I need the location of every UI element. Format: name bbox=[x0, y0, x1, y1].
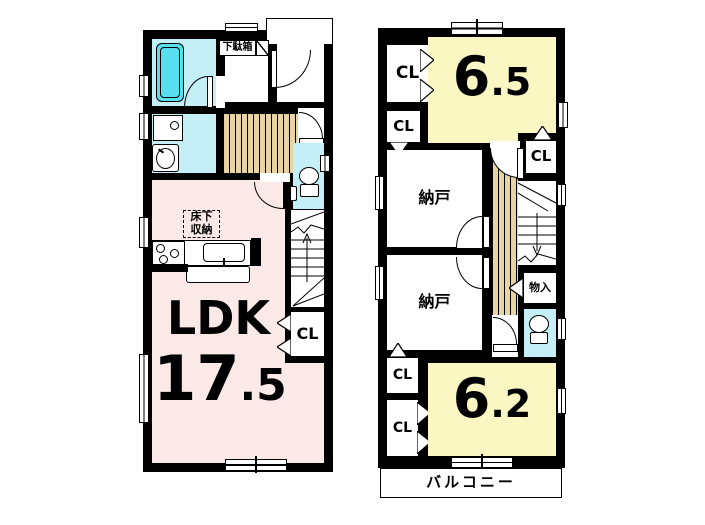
room-6-5-size: 6 .5 bbox=[428, 50, 556, 120]
closet-2f-1-bifold-icon-top bbox=[420, 49, 434, 72]
stairwell-1f-steps bbox=[291, 210, 324, 307]
ldk-room-lower-right bbox=[285, 363, 324, 463]
entrance-step bbox=[225, 23, 258, 32]
washing-machine-dial bbox=[170, 121, 179, 130]
underfloor-storage-box: 床下 収納 bbox=[183, 210, 220, 238]
storage-room-2-door-leaf bbox=[483, 257, 490, 289]
balcony: バルコニー bbox=[380, 468, 562, 498]
window-ldk-left-lower bbox=[139, 354, 149, 423]
closet-2f-3: CL bbox=[387, 358, 418, 393]
kitchen-faucet bbox=[223, 258, 225, 266]
toilet-tank-icon bbox=[300, 184, 319, 197]
closet-2f-1-label: CL bbox=[396, 64, 419, 84]
window-stairs-right bbox=[557, 184, 566, 206]
stairwell-1f bbox=[291, 210, 324, 307]
room-6-2-dec: .2 bbox=[490, 385, 531, 423]
closet-2f-3-bifold-icon bbox=[389, 343, 407, 357]
window-ldk-bottom-tick bbox=[255, 456, 257, 473]
small-storage-label: 物入 bbox=[529, 282, 551, 295]
toilet-2f-bowl-icon bbox=[529, 315, 549, 333]
closet-2f-upper-right: CL bbox=[526, 141, 556, 173]
closet-2f-upper-right-door-icon bbox=[533, 126, 552, 140]
window-bathroom-left bbox=[139, 75, 149, 97]
ldk-size: 17 .5 bbox=[150, 348, 290, 420]
balcony-label: バルコニー bbox=[426, 474, 516, 491]
window-6-5-top-tick bbox=[476, 19, 478, 37]
burner-3 bbox=[159, 255, 168, 264]
kitchen-wall-stub-right bbox=[251, 238, 261, 266]
storage-room-1-label: 納戸 bbox=[418, 189, 450, 207]
kitchen-wall-stub-bottom bbox=[151, 264, 188, 272]
closet-2f-4-label: CL bbox=[393, 420, 412, 436]
bathroom-doorway-gap bbox=[216, 76, 225, 108]
toilet-bowl-icon bbox=[299, 167, 319, 185]
closet-2f-4: CL bbox=[387, 400, 418, 456]
window-toilet-2f bbox=[557, 318, 566, 340]
washing-machine-icon bbox=[153, 115, 183, 141]
toilet-2f-tank-icon bbox=[530, 332, 548, 344]
bathroom-door-leaf bbox=[207, 76, 213, 108]
ldk-name-text: LDK bbox=[167, 292, 270, 345]
small-storage-bifold-icon bbox=[509, 278, 523, 298]
closet-ur-wall-bottom bbox=[518, 173, 565, 181]
bathtub-icon bbox=[156, 43, 184, 102]
burner-2 bbox=[170, 249, 179, 258]
entrance-hall bbox=[225, 56, 268, 102]
closet-1f-label: CL bbox=[297, 325, 319, 343]
vestibule-door-leaf bbox=[493, 344, 518, 352]
vanity-sink-icon bbox=[152, 144, 179, 172]
closet-2f-upper-right-label: CL bbox=[531, 148, 552, 165]
closet-2f-2-label: CL bbox=[393, 118, 414, 135]
room-6-5-dec: .5 bbox=[490, 63, 531, 101]
window-storage1-left bbox=[375, 176, 384, 210]
shoe-cabinet-symbol bbox=[256, 40, 269, 56]
shoe-cabinet-label: 下駄箱 bbox=[223, 42, 253, 54]
stairwell-2f bbox=[518, 181, 556, 265]
bathtub-inner bbox=[160, 47, 180, 98]
underfloor-storage-line2: 収納 bbox=[191, 224, 213, 237]
ldk-size-dec: .5 bbox=[239, 364, 286, 408]
small-storage: 物入 bbox=[524, 273, 556, 303]
toilet-window bbox=[320, 155, 330, 172]
ldk-name: LDK bbox=[152, 292, 285, 344]
kitchen-island bbox=[186, 266, 250, 283]
room-6-5-int: 6 bbox=[453, 50, 491, 104]
room-6-2-int: 6 bbox=[453, 372, 491, 426]
storage-room-1-door-leaf bbox=[483, 216, 490, 248]
ldk-doorway-gap bbox=[260, 173, 290, 182]
ldk-door-leaf bbox=[283, 182, 291, 209]
entrance-door-leaf bbox=[271, 50, 277, 88]
closet-2f-1-bifold-icon-bottom bbox=[420, 79, 434, 102]
ldk-size-int: 17 bbox=[153, 348, 239, 410]
storage-room-2-label: 納戸 bbox=[418, 293, 450, 311]
hall-door-leaf bbox=[517, 148, 524, 179]
window-6-2-right bbox=[557, 388, 566, 414]
stove-icon bbox=[152, 241, 185, 265]
window-6-5-right bbox=[558, 102, 568, 128]
closet-1f: CL bbox=[291, 312, 324, 356]
shoe-cabinet-box: 下駄箱 bbox=[219, 40, 256, 56]
closet-2f-2: CL bbox=[387, 111, 420, 142]
stairs-upper-run bbox=[223, 114, 300, 173]
room-6-2-size: 6 .2 bbox=[428, 372, 556, 442]
window-storage2-left bbox=[375, 266, 384, 300]
window-ldk-left-upper bbox=[139, 217, 149, 248]
window-washroom-left bbox=[139, 113, 149, 140]
floor-plan-canvas: 下駄箱 床下 収納 bbox=[0, 0, 705, 525]
closet-2f-3-label: CL bbox=[393, 367, 412, 383]
burner-1 bbox=[156, 244, 165, 253]
stairwell-2f-steps bbox=[518, 181, 556, 265]
